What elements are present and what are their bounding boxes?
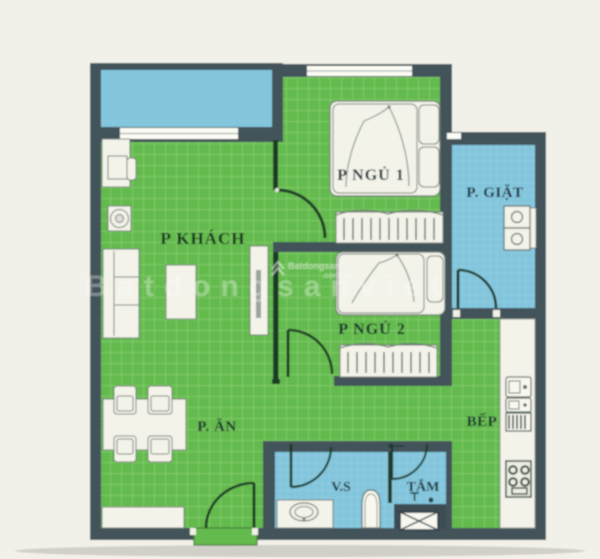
- svg-text:P NGỦ 2: P NGỦ 2: [338, 319, 405, 338]
- svg-text:P. ĂN: P. ĂN: [197, 418, 236, 435]
- svg-text:P KHÁCH: P KHÁCH: [161, 229, 246, 248]
- svg-text:Batdongsanviet: Batdongsanviet: [85, 270, 450, 303]
- svg-text:P NGỦ 1: P NGỦ 1: [337, 165, 404, 184]
- svg-text:TẮM: TẮM: [407, 478, 440, 495]
- svg-text:BẾP: BẾP: [467, 413, 498, 430]
- svg-text:V.S: V.S: [331, 480, 351, 495]
- svg-text:P. GIẶT: P. GIẶT: [466, 184, 523, 201]
